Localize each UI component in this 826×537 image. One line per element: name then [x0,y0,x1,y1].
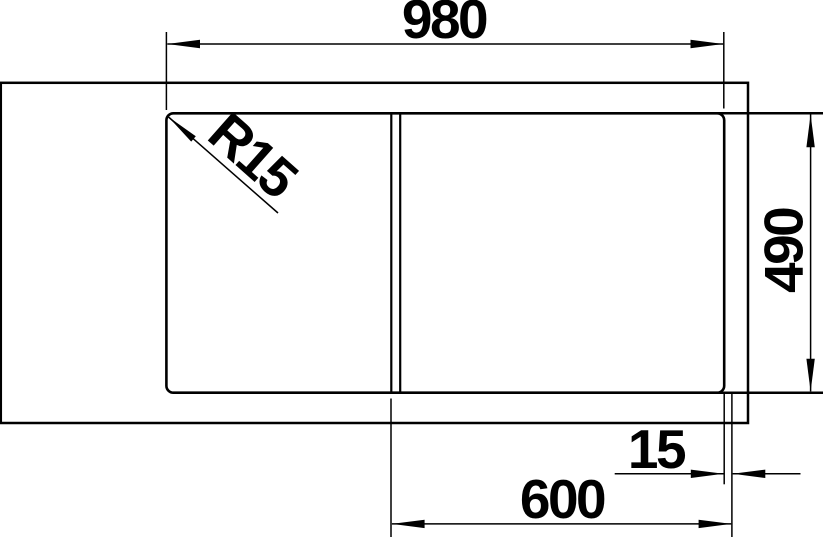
svg-text:15: 15 [628,418,686,480]
svg-text:600: 600 [520,468,605,530]
svg-text:490: 490 [753,208,815,293]
svg-text:980: 980 [402,0,487,50]
